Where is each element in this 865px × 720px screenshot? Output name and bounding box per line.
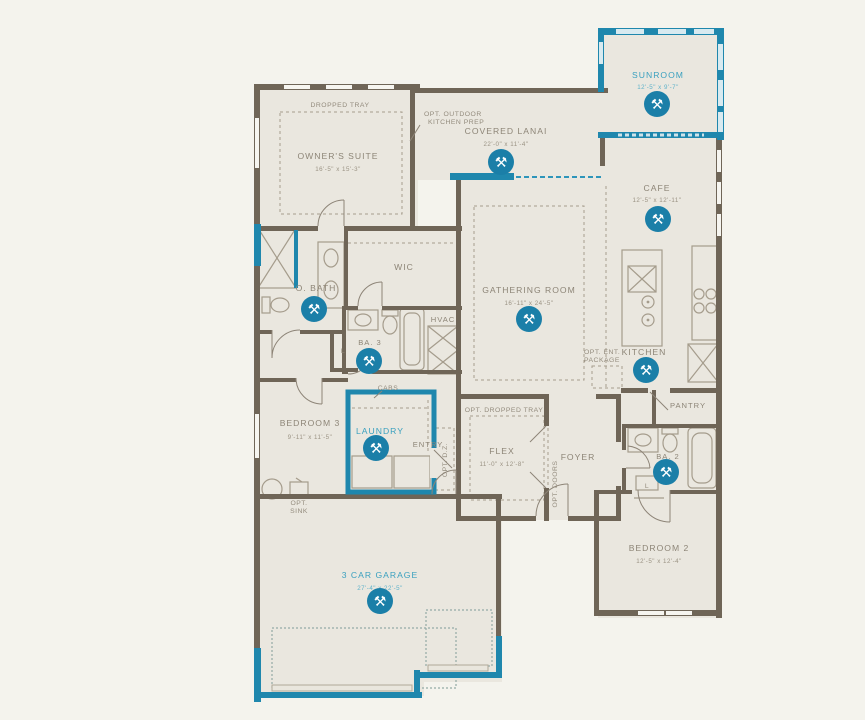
kitchen-range-counter [692, 246, 718, 340]
garage-bay-notch [424, 682, 504, 700]
shower-glass-wall [294, 230, 298, 288]
opt-dropped-tray-label: OPT. DROPPED TRAY [465, 407, 544, 414]
garage-door-single [428, 665, 488, 671]
entry-label: ENTRY [413, 440, 444, 449]
garage-sill-single [420, 672, 502, 678]
flex-dims: 11'-0" x 12'-8" [479, 461, 524, 468]
wic-label: WIC [394, 262, 414, 272]
opt-sink-label-1: OPT. [290, 500, 307, 507]
gathering-room-dims: 16'-11" x 24'-5" [504, 300, 553, 307]
svg-text:⚒: ⚒ [652, 212, 665, 228]
floor-plan-canvas: SUNROOM 12'-5" x 9'-7" DROPPED TRAY OWNE… [0, 0, 865, 720]
tools-icon-garage[interactable]: ⚒ [367, 588, 393, 614]
opt-outdoor-kitchen-label-2: KITCHEN PREP [428, 119, 484, 126]
svg-text:⚒: ⚒ [640, 363, 653, 379]
svg-text:⚒: ⚒ [660, 465, 673, 481]
linen-label-1: L [341, 348, 345, 355]
floor-plan: SUNROOM 12'-5" x 9'-7" DROPPED TRAY OWNE… [0, 0, 865, 720]
svg-text:⚒: ⚒ [363, 354, 376, 370]
cabs-label: CABS [378, 385, 399, 392]
dropped-tray-label: DROPPED TRAY [310, 102, 369, 109]
svg-text:⚒: ⚒ [308, 302, 321, 318]
bedroom-3-label: BEDROOM 3 [280, 418, 341, 428]
garage-bay-floor [420, 496, 500, 678]
pantry-label: PANTRY [670, 401, 706, 410]
tools-icon-bath-3[interactable]: ⚒ [356, 348, 382, 374]
kitchen-label: KITCHEN [622, 347, 667, 357]
covered-lanai-label: COVERED LANAI [465, 126, 548, 136]
laundry-label: LAUNDRY [356, 426, 404, 436]
tools-icon-kitchen[interactable]: ⚒ [633, 357, 659, 383]
cafe-dims: 12'-5" x 12'-11" [632, 197, 681, 204]
tools-icon-lanai[interactable]: ⚒ [488, 149, 514, 175]
tools-icon-gathering[interactable]: ⚒ [516, 306, 542, 332]
opt-ent-label-1: OPT. ENT. [584, 349, 620, 356]
svg-text:⚒: ⚒ [370, 441, 383, 457]
garage-label: 3 CAR GARAGE [342, 570, 418, 580]
bedroom-3-dims: 9'-11" x 11'-5" [288, 434, 333, 441]
opt-doors-label: OPT. DOORS [552, 461, 559, 508]
garage-door-wide [272, 685, 412, 691]
tools-icon-bath-2[interactable]: ⚒ [653, 459, 679, 485]
opt-sink-label-2: SINK [290, 508, 308, 515]
owners-bath-label: O. BATH [296, 283, 337, 293]
opt-dz-label: OPT. D.Z. [442, 443, 449, 477]
svg-text:⚒: ⚒ [651, 97, 664, 113]
bedroom-2-label: BEDROOM 2 [629, 543, 690, 553]
kitchen-island [622, 250, 662, 346]
svg-text:⚒: ⚒ [495, 155, 508, 171]
tools-icon-laundry[interactable]: ⚒ [363, 435, 389, 461]
foyer-label: FOYER [561, 452, 596, 462]
owners-suite-dims: 16'-5" x 15'-3" [315, 166, 361, 173]
tools-icon-owners-bath[interactable]: ⚒ [301, 296, 327, 322]
bath-3-label: BA. 3 [358, 338, 382, 347]
gathering-room-label: GATHERING ROOM [482, 285, 576, 295]
tools-icon-cafe[interactable]: ⚒ [645, 206, 671, 232]
sunroom-label: SUNROOM [632, 70, 684, 80]
shower-highlight-wall [254, 224, 261, 266]
garage-corner-right [496, 636, 502, 678]
garage-step-wall [414, 670, 420, 698]
cafe-label: CAFE [644, 183, 671, 193]
linen-label-2: L [645, 483, 649, 490]
opt-ent-label-2: PACKAGE [584, 357, 620, 364]
bedroom-2-dims: 12'-5" x 12'-4" [636, 558, 682, 565]
svg-text:⚒: ⚒ [523, 312, 536, 328]
tools-icon-sunroom[interactable]: ⚒ [644, 91, 670, 117]
opt-outdoor-kitchen-label-1: OPT. OUTDOOR [424, 111, 482, 118]
garage-sill-wide [254, 692, 422, 698]
hvac-label: HVAC [431, 315, 456, 324]
covered-lanai-dims: 22'-0" x 11'-4" [483, 141, 528, 148]
svg-text:⚒: ⚒ [374, 594, 387, 610]
owners-suite-label: OWNER'S SUITE [297, 151, 378, 161]
sunroom-dims: 12'-5" x 9'-7" [637, 84, 679, 91]
flex-label: FLEX [489, 446, 515, 456]
